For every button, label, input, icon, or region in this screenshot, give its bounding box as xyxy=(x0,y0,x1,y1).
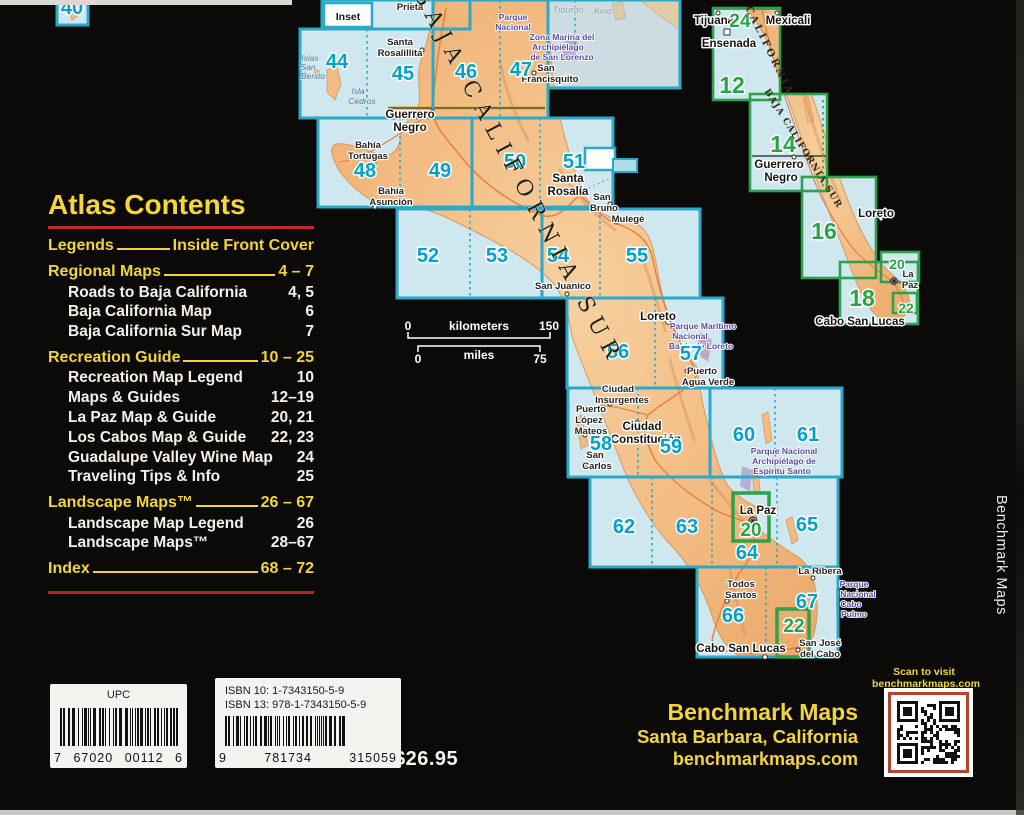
map-label: Mulegé xyxy=(612,214,645,225)
page-title: Atlas Contents xyxy=(48,190,314,221)
map-label: 53 xyxy=(486,245,508,267)
map-label: La Paz xyxy=(740,505,777,517)
toc-entry-label: Index xyxy=(48,560,90,578)
map-label: San xyxy=(593,192,611,203)
map-label: Nacional xyxy=(495,22,530,32)
map-label: 47 xyxy=(510,59,532,81)
toc-row: Recreation Map Legend10 xyxy=(48,369,314,387)
map-label: 150 xyxy=(539,319,559,333)
upc-digits: 7 67020 00112 6 xyxy=(54,751,183,765)
toc-entry-pages: 10 – 25 xyxy=(261,349,314,367)
toc-entry-pages: 28–67 xyxy=(271,534,314,552)
map-label: de San Lorenzo xyxy=(530,52,593,62)
map-label: 61 xyxy=(797,424,819,446)
toc-entry-label: Recreation Map Legend xyxy=(68,369,243,387)
map-label: miles xyxy=(464,348,495,362)
toc-entry-pages: 6 xyxy=(305,303,314,321)
map-label: Santa xyxy=(387,37,414,48)
isbn-digits: 9 781734 315059 xyxy=(219,751,397,765)
map-label: Asunción xyxy=(369,197,412,208)
isbn-digit: 781734 xyxy=(264,751,312,765)
map-label: San xyxy=(586,450,604,461)
toc-row: Landscape Maps™26 – 67 xyxy=(48,494,314,512)
page-edge xyxy=(0,0,292,5)
toc-entry-pages: Inside Front Cover xyxy=(173,237,314,255)
map-label: Cabo San Lucas xyxy=(815,316,904,328)
page-edge xyxy=(1016,0,1024,815)
toc-leader xyxy=(93,571,258,573)
upc-bars xyxy=(60,708,179,746)
toc-entry-label: Roads to Baja California xyxy=(68,284,247,302)
map-label: 63 xyxy=(676,516,698,538)
isbn-numbers: ISBN 10: 1-7343150-5-9 ISBN 13: 978-1-73… xyxy=(215,678,401,713)
toc-entry-pages: 7 xyxy=(305,323,314,341)
isbn-13: ISBN 13: 978-1-7343150-5-9 xyxy=(225,698,401,712)
divider xyxy=(48,591,314,594)
toc-entry-pages: 26 – 67 xyxy=(261,494,314,512)
map-label: Negro xyxy=(393,122,426,134)
map-label: Paz xyxy=(902,280,919,291)
map-label: 66 xyxy=(722,605,744,627)
toc-row: Los Cabos Map & Guide22, 23 xyxy=(48,429,314,447)
toc-entry-pages: 10 xyxy=(297,369,314,387)
map-label: 44 xyxy=(326,51,349,73)
map-label: Kino xyxy=(594,6,612,16)
upc-digit: 67020 xyxy=(73,751,113,765)
map-label: San xyxy=(537,63,555,74)
toc-leader xyxy=(196,505,258,507)
map-label: 45 xyxy=(392,63,414,85)
toc-row: Regional Maps4 – 7 xyxy=(48,263,314,281)
toc-entry-pages: 4 – 7 xyxy=(278,263,314,281)
map-label: 49 xyxy=(429,160,451,182)
map-label: La Ribera xyxy=(798,566,842,577)
toc-entry-label: Baja California Sur Map xyxy=(68,323,242,341)
toc-entry-label: Maps & Guides xyxy=(68,389,180,407)
isbn-bars xyxy=(225,716,393,746)
map-label: Tiburón xyxy=(553,5,583,15)
isbn-10: ISBN 10: 1-7343150-5-9 xyxy=(225,684,401,698)
toc-entry-label: Los Cabos Map & Guide xyxy=(68,429,246,447)
publisher-city: Santa Barbara, California xyxy=(637,726,858,749)
map-label: 0 xyxy=(405,319,412,333)
upc-barcode: UPC 7 67020 00112 6 xyxy=(50,684,187,768)
qr-caption-line: benchmarkmaps.com xyxy=(872,678,976,690)
map-label: 75 xyxy=(533,352,547,366)
toc-entry-label: La Paz Map & Guide xyxy=(68,409,216,427)
map-label: Ensenada xyxy=(702,38,757,50)
map-label: Espíritu Santo xyxy=(753,466,811,476)
toc-entry-pages: 26 xyxy=(297,515,314,533)
divider xyxy=(48,226,314,229)
toc-rows: LegendsInside Front CoverRegional Maps4 … xyxy=(48,237,314,579)
toc-row: Baja California Sur Map7 xyxy=(48,323,314,341)
map-label: Nacional xyxy=(840,589,875,599)
map-label: Parque Nacional xyxy=(751,446,818,456)
map-label: 55 xyxy=(626,245,648,267)
toc-row: Index68 – 72 xyxy=(48,560,314,578)
qr-caption: Scan to visit benchmarkmaps.com xyxy=(872,666,976,690)
map-label: Guerrero xyxy=(385,109,434,121)
map-label: Puerto xyxy=(687,366,717,377)
upc-digit: 6 xyxy=(175,751,183,765)
map-label: 22 xyxy=(898,300,914,316)
toc-leader xyxy=(183,360,257,362)
map-label: 62 xyxy=(613,516,635,538)
map-label: Cabo xyxy=(840,599,861,609)
map-label: Rosalía xyxy=(548,186,590,198)
toc-entry-pages: 68 – 72 xyxy=(261,560,314,578)
toc-entry-pages: 24 xyxy=(297,449,314,467)
map-label: Loreto xyxy=(858,208,894,220)
toc-entry-pages: 25 xyxy=(297,468,314,486)
map-label: Mexicali xyxy=(766,15,811,27)
map-label: 67 xyxy=(796,591,818,613)
toc-entry-label: Landscape Map Legend xyxy=(68,515,244,533)
toc-entry-label: Landscape Maps™ xyxy=(68,534,208,552)
map-label: 60 xyxy=(733,424,755,446)
toc-row: La Paz Map & Guide20, 21 xyxy=(48,409,314,427)
toc-entry-pages: 12–19 xyxy=(271,389,314,407)
map-label: Puerto xyxy=(576,404,606,415)
map-label: Nacional xyxy=(672,331,707,341)
map-label: 64 xyxy=(736,542,759,564)
page-edge xyxy=(0,810,1024,815)
map-label: del Cabo xyxy=(800,649,840,660)
map-label: 52 xyxy=(417,245,439,267)
map-label: Santos xyxy=(725,590,757,601)
map-label: Cedros xyxy=(348,96,376,106)
map-label: Todos xyxy=(727,579,755,590)
map-label: Guerrero xyxy=(754,159,803,171)
toc-entry-label: Regional Maps xyxy=(48,263,161,281)
map-label: Ciudad xyxy=(623,421,662,433)
spine-title: Benchmark Maps xyxy=(993,495,1009,625)
map-label: Parque xyxy=(499,12,528,22)
toc-entry-label: Legends xyxy=(48,237,114,255)
toc-entry-pages: 22, 23 xyxy=(271,429,314,447)
toc-row: Roads to Baja California4, 5 xyxy=(48,284,314,302)
map-label: Archipiélago de xyxy=(752,456,816,466)
map-label: Bahía xyxy=(378,186,405,197)
atlas-contents: Atlas Contents LegendsInside Front Cover… xyxy=(48,190,314,594)
map-label: San José xyxy=(799,638,841,649)
toc-row: Maps & Guides12–19 xyxy=(48,389,314,407)
map-label: 18 xyxy=(849,285,875,311)
map-label: kilometers xyxy=(449,319,509,333)
publisher-website: benchmarkmaps.com xyxy=(637,749,858,771)
map-label: 22 xyxy=(783,616,804,637)
toc-entry-label: Baja California Map xyxy=(68,303,212,321)
map-label: 20 xyxy=(740,520,761,541)
map-label: Archipiélago xyxy=(532,42,583,52)
publisher-block: Benchmark Maps Santa Barbara, California… xyxy=(637,698,858,771)
map-label: 51 xyxy=(563,151,585,173)
isbn-digit: 9 xyxy=(219,751,227,765)
map-label: Bahía xyxy=(355,140,382,151)
map-label: 59 xyxy=(660,436,682,458)
map-label: Isla xyxy=(351,86,365,96)
price: $26.95 xyxy=(394,748,458,771)
atlas-back-cover: InsetPrietaParqueNacionalZona Marina del… xyxy=(0,0,1024,815)
toc-row: Baja California Map6 xyxy=(48,303,314,321)
map-label: 65 xyxy=(796,514,818,536)
toc-entry-label: Recreation Guide xyxy=(48,349,180,367)
map-label: Pulmo xyxy=(841,609,867,619)
map-label: Ciudad xyxy=(602,384,634,395)
map-label: Parque xyxy=(840,579,869,589)
map-label: La xyxy=(902,269,914,280)
toc-row: LegendsInside Front Cover xyxy=(48,237,314,255)
toc-entry-label: Traveling Tips & Info xyxy=(68,468,220,486)
qr-caption-line: Scan to visit xyxy=(872,666,976,678)
qr-code-icon xyxy=(888,692,969,773)
toc-leader xyxy=(117,248,170,250)
map-label: Cabo San Lucas xyxy=(696,643,785,655)
upc-digit: 7 xyxy=(54,751,62,765)
toc-row: Landscape Map Legend26 xyxy=(48,515,314,533)
toc-row: Guadalupe Valley Wine Map24 xyxy=(48,449,314,467)
toc-row: Recreation Guide10 – 25 xyxy=(48,349,314,367)
toc-entry-pages: 4, 5 xyxy=(288,284,314,302)
toc-row: Landscape Maps™28–67 xyxy=(48,534,314,552)
isbn-digit: 315059 xyxy=(349,751,397,765)
upc-label: UPC xyxy=(50,684,187,701)
map-label: 57 xyxy=(680,343,702,365)
map-label: Zona Marina del xyxy=(530,32,595,42)
map-label: Negro xyxy=(764,172,797,184)
map-label: Benito xyxy=(301,71,325,81)
toc-row: Traveling Tips & Info25 xyxy=(48,468,314,486)
toc-entry-pages: 20, 21 xyxy=(271,409,314,427)
map-label: Agua Verde xyxy=(682,377,734,388)
map-label: Carlos xyxy=(582,461,612,472)
map-label: López xyxy=(575,415,603,426)
publisher-name: Benchmark Maps xyxy=(637,698,858,726)
map-label: 12 xyxy=(719,72,745,98)
map-label: Santa xyxy=(552,173,584,185)
map-label: Rosalillita xyxy=(378,48,424,59)
toc-entry-label: Landscape Maps™ xyxy=(48,494,193,512)
map-label: Parque Marítimo xyxy=(670,321,737,331)
map-label: Inset xyxy=(336,11,361,23)
toc-leader xyxy=(164,274,276,276)
map-label: 16 xyxy=(811,218,837,244)
toc-entry-label: Guadalupe Valley Wine Map xyxy=(68,449,273,467)
isbn-barcode: ISBN 10: 1-7343150-5-9 ISBN 13: 978-1-73… xyxy=(215,678,401,768)
map-label: Bruno xyxy=(590,203,618,214)
upc-digit: 00112 xyxy=(125,751,164,765)
map-label: 48 xyxy=(354,160,376,182)
map-label: 0 xyxy=(415,352,422,366)
